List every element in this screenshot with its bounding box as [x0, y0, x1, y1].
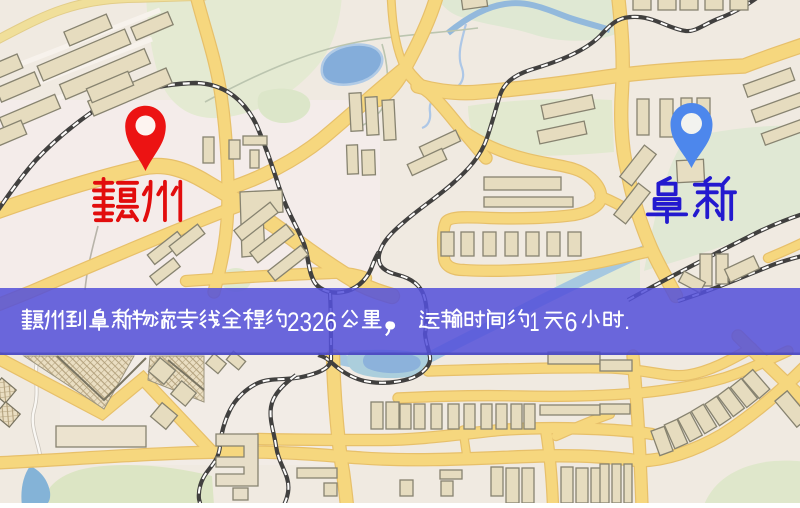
- svg-text:.: .: [624, 309, 630, 334]
- svg-text:2326: 2326: [287, 307, 337, 337]
- svg-text:1: 1: [530, 307, 540, 337]
- svg-text:6: 6: [565, 307, 578, 337]
